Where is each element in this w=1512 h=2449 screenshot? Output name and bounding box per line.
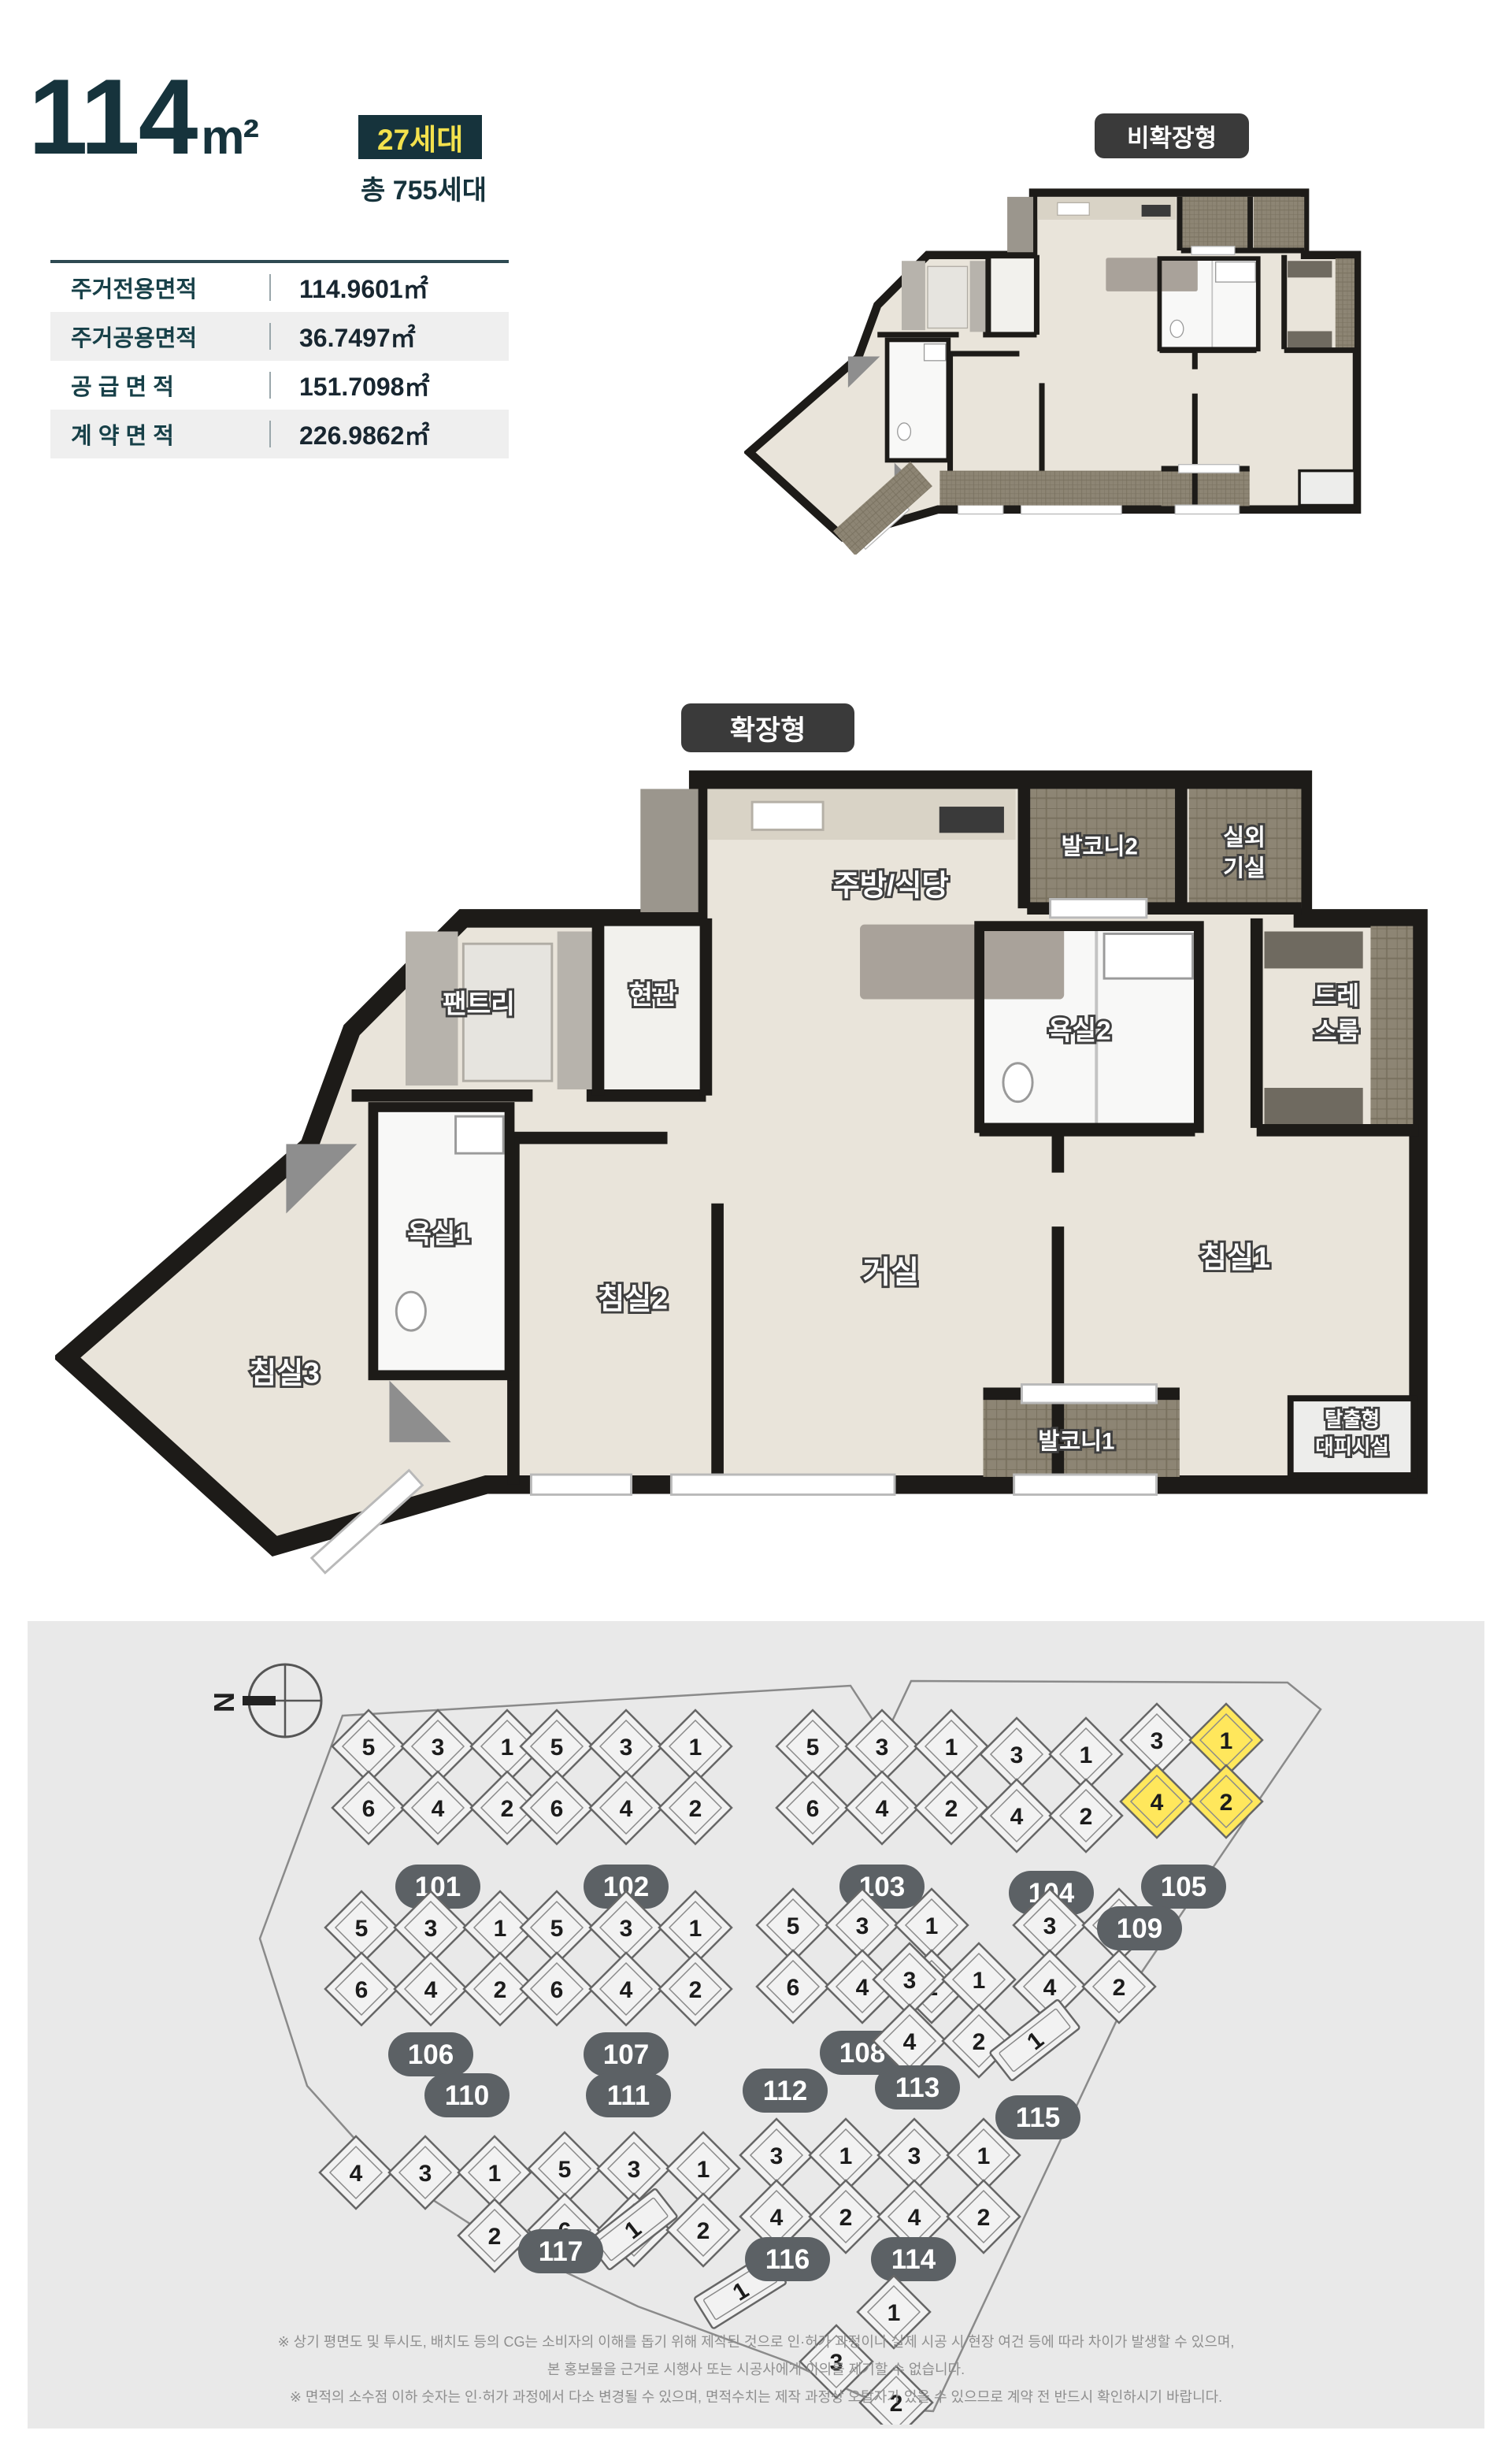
- non-extended-floorplan: [744, 187, 1374, 555]
- unit-number: 4: [424, 1977, 438, 2003]
- unit-number: 2: [501, 1796, 514, 1822]
- room-label: 탈출형: [1325, 1408, 1380, 1430]
- unit-count-badge: 27세대: [358, 115, 482, 159]
- unit-number: 6: [787, 1975, 800, 2001]
- unit-number: 1: [689, 1916, 702, 1942]
- disclaimer: ※ 상기 평면도 및 투시도, 배치도 등의 CG는 소비자의 이해를 돕기 위…: [28, 2328, 1484, 2411]
- extended-badge: 확장형: [681, 703, 854, 752]
- area-label: 주거공용면적: [50, 320, 269, 353]
- building-badge-number: 106: [408, 2039, 454, 2070]
- site-buildings: 5316421015316421025316421033142104314210…: [320, 1704, 1262, 2425]
- disclaimer-line: ※ 상기 평면도 및 투시도, 배치도 등의 CG는 소비자의 이해를 돕기 위…: [28, 2328, 1484, 2356]
- area-table: 주거전용면적 114.9601㎡ 주거공용면적 36.7497㎡ 공 급 면 적…: [50, 260, 509, 458]
- unit-number: 4: [1010, 1804, 1024, 1830]
- unit-number: 4: [1151, 1790, 1164, 1816]
- site-plan-svg: N 53164210153164210253164210331421043142…: [28, 1621, 1484, 2425]
- unit-number: 1: [689, 1735, 702, 1761]
- area-label: 주거전용면적: [50, 271, 269, 304]
- room-label: 욕실1: [407, 1220, 470, 1249]
- unit-number: 6: [550, 1977, 564, 2003]
- unit-number: 6: [550, 1796, 564, 1822]
- unit-number: 5: [787, 1913, 800, 1939]
- unit-number: 1: [888, 2300, 901, 2326]
- building-cluster: 1115: [989, 1999, 1080, 2139]
- size-unit: m²: [201, 110, 258, 165]
- unit-number: 3: [620, 1735, 633, 1761]
- room-label: 기실: [1223, 855, 1266, 881]
- unit-number: 1: [945, 1735, 958, 1761]
- area-label: 공 급 면 적: [50, 369, 269, 402]
- building-cluster: 531642106: [325, 1891, 536, 2076]
- unit-number: 4: [856, 1975, 869, 2001]
- unit-number: 4: [620, 1796, 633, 1822]
- room-label: 침실3: [250, 1356, 320, 1390]
- building-badge-number: 105: [1161, 1872, 1206, 1902]
- unit-number: 2: [689, 1977, 702, 2003]
- unit-number: 1: [925, 1913, 939, 1939]
- unit-number: 4: [908, 2205, 921, 2231]
- building-cluster: 531642101: [332, 1710, 543, 1909]
- room-label: 실외: [1223, 825, 1266, 851]
- unit-number: 5: [806, 1735, 820, 1761]
- building-badge-number: 117: [539, 2236, 583, 2267]
- unit-number: 4: [350, 2161, 363, 2187]
- building-cluster: 531642102: [521, 1710, 732, 1909]
- unit-number: 4: [1043, 1975, 1057, 2001]
- building-badge-number: 114: [891, 2244, 936, 2275]
- area-value: 36.7497㎡: [271, 318, 509, 354]
- unit-number: 1: [488, 2161, 502, 2187]
- unit-number: 6: [362, 1796, 376, 1822]
- room-label: 현관: [628, 981, 676, 1010]
- table-row: 계 약 면 적 226.9862㎡: [50, 410, 509, 458]
- room-label: 스룸: [1314, 1017, 1360, 1045]
- area-value: 151.7098㎡: [271, 367, 509, 403]
- unit-number: 2: [973, 2029, 986, 2055]
- room-label: 발코니2: [1062, 834, 1138, 860]
- unit-number: 2: [839, 2205, 853, 2231]
- room-label: 발코니1: [1038, 1429, 1114, 1455]
- unit-number: 2: [1220, 1790, 1233, 1816]
- room-label: 욕실2: [1048, 1016, 1111, 1045]
- unit-number: 1: [977, 2143, 991, 2169]
- unit-number: 2: [1080, 1804, 1093, 1830]
- unit-number: 4: [620, 1977, 633, 2003]
- unit-number: 3: [908, 2143, 921, 2169]
- compass-north-label: N: [208, 1692, 240, 1712]
- unit-number: 3: [424, 1916, 438, 1942]
- room-label: 침실1: [1200, 1241, 1270, 1274]
- unit-number: 6: [355, 1977, 369, 2003]
- disclaimer-line: 본 홍보물을 근거로 시행사 또는 시공사에게 이의를 제기할 수 없습니다.: [28, 2356, 1484, 2384]
- room-label: 드레: [1314, 981, 1360, 1009]
- unit-number: 3: [770, 2143, 784, 2169]
- unit-number: 1: [1220, 1728, 1233, 1754]
- total-units-label: 총 755세대: [361, 169, 487, 207]
- building-badge-number: 113: [895, 2072, 939, 2103]
- unit-number: 4: [770, 2205, 784, 2231]
- room-label: 거실: [862, 1256, 919, 1289]
- unit-number: 5: [550, 1735, 564, 1761]
- room-label: 대피시설: [1315, 1437, 1389, 1459]
- unit-number: 3: [620, 1916, 633, 1942]
- unit-number: 1: [839, 2143, 853, 2169]
- unit-number: 1: [501, 1735, 514, 1761]
- unit-number: 3: [856, 1913, 869, 1939]
- unit-number: 1: [973, 1968, 986, 1994]
- unit-number: 3: [876, 1735, 889, 1761]
- unit-number: 2: [697, 2218, 710, 2244]
- room-label: 팬트리: [443, 990, 515, 1019]
- unit-number: 5: [558, 2157, 572, 2183]
- unit-number: 1: [1080, 1742, 1093, 1768]
- room-label: 주방/식당: [833, 869, 949, 902]
- unit-number: 2: [977, 2205, 991, 2231]
- building-cluster: 3142114: [871, 2119, 1020, 2281]
- building-cluster: 3142109: [1014, 1889, 1182, 2023]
- building-badge-number: 110: [445, 2080, 489, 2111]
- unit-number: 2: [689, 1796, 702, 1822]
- unit-number: 2: [488, 2224, 502, 2250]
- building-cluster: 531642103: [776, 1710, 988, 1909]
- disclaimer-line: ※ 면적의 소수점 이하 숫자는 인·허가 과정에서 다소 변경될 수 있으며,…: [28, 2384, 1484, 2411]
- building-cluster: 4312110: [320, 2073, 531, 2272]
- building-badge-number: 109: [1117, 1913, 1162, 1944]
- unit-number: 1: [494, 1916, 507, 1942]
- table-row: 공 급 면 적 151.7098㎡: [50, 361, 509, 410]
- size-value: 114: [28, 57, 196, 176]
- unit-number: 5: [355, 1916, 369, 1942]
- area-value: 114.9601㎡: [271, 269, 509, 306]
- unit-number: 2: [494, 1977, 507, 2003]
- unit-number: 3: [1010, 1742, 1024, 1768]
- unit-number: 1: [697, 2157, 710, 2183]
- unit-number: 4: [903, 2029, 917, 2055]
- unit-number: 5: [550, 1916, 564, 1942]
- extended-floorplan: 주방/식당발코니2실외기실팬트리현관욕실2드레스룸침실1욕실1침실2거실침실3발…: [55, 768, 1457, 1585]
- building-badge-number: 107: [603, 2039, 649, 2070]
- unit-number: 3: [903, 1968, 917, 1994]
- site-plan-panel: N 53164210153164210253164210331421043142…: [28, 1621, 1484, 2429]
- building-cluster: 531642107: [521, 1891, 732, 2076]
- unit-number: 3: [432, 1735, 445, 1761]
- building-cluster: 3142104: [980, 1718, 1122, 1915]
- building-cluster: 3142112: [740, 2069, 882, 2253]
- unit-number: 4: [876, 1796, 889, 1822]
- unit-number: 3: [628, 2157, 641, 2183]
- unit-number: 6: [806, 1796, 820, 1822]
- table-row: 주거공용면적 36.7497㎡: [50, 312, 509, 361]
- non-extended-badge: 비확장형: [1095, 113, 1249, 158]
- room-label: 침실2: [598, 1282, 668, 1315]
- building-badge-number: 111: [607, 2080, 650, 2111]
- unit-number: 2: [1113, 1975, 1126, 2001]
- unit-number: 2: [945, 1796, 958, 1822]
- table-row: 주거전용면적 114.9601㎡: [50, 263, 509, 312]
- brochure-page: 114m² 27세대 총 755세대 주거전용면적 114.9601㎡ 주거공용…: [0, 0, 1512, 2449]
- unit-number: 3: [1043, 1913, 1057, 1939]
- building-badge-number: 116: [765, 2244, 810, 2275]
- unit-number: 4: [432, 1796, 445, 1822]
- building-badge-number: 112: [763, 2076, 807, 2106]
- unit-number: 3: [419, 2161, 432, 2187]
- unit-number: 5: [362, 1735, 376, 1761]
- area-value: 226.9862㎡: [271, 416, 509, 452]
- plan-size-title: 114m²: [28, 63, 258, 170]
- building-badge-number: 115: [1016, 2102, 1060, 2133]
- compass-north-tick: [243, 1696, 276, 1705]
- area-label: 계 약 면 적: [50, 417, 269, 451]
- compass: N: [208, 1664, 321, 1737]
- building-cluster: 3142105: [1121, 1704, 1262, 1909]
- unit-number: 3: [1151, 1728, 1164, 1754]
